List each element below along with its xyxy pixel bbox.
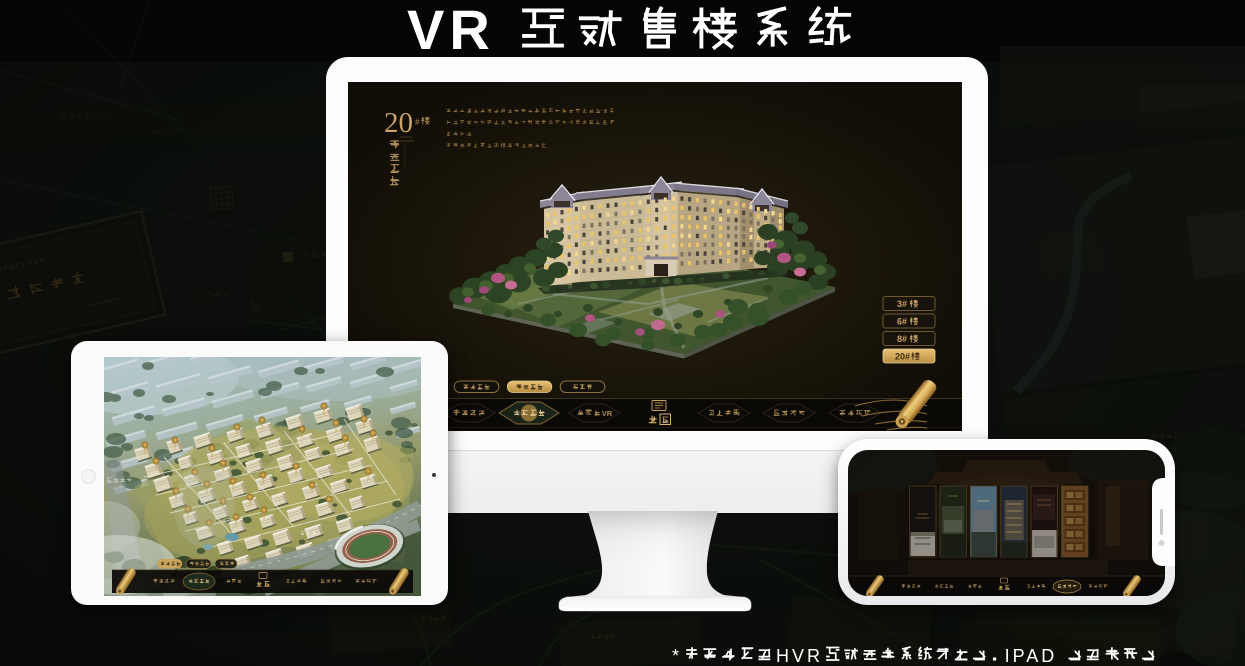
svg-text:3#: 3# (897, 299, 907, 309)
svg-text:IPAD: IPAD (1005, 646, 1058, 666)
svg-text:8#: 8# (897, 334, 907, 344)
svg-text:6#: 6# (897, 317, 907, 327)
svg-text:20: 20 (384, 107, 413, 139)
svg-text:HVR: HVR (776, 646, 823, 666)
svg-text:*: * (672, 646, 682, 666)
svg-text:#: # (415, 117, 420, 127)
svg-text:VR: VR (602, 409, 613, 418)
svg-text:20#: 20# (895, 352, 910, 362)
svg-text:VR: VR (407, 0, 495, 61)
